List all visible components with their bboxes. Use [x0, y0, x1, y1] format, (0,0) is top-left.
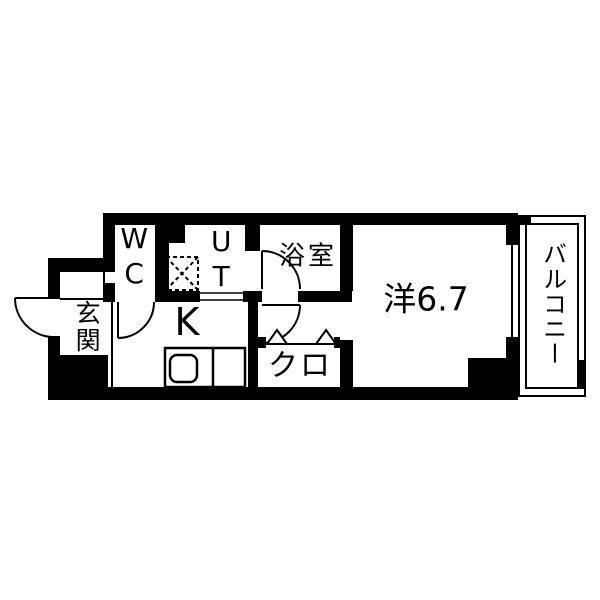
wall-closet-left: [248, 302, 258, 387]
wall-niche: [105, 272, 115, 283]
entrance-door: [15, 298, 54, 337]
wall-top: [103, 213, 518, 225]
balcony-label: バルコニー: [539, 242, 564, 367]
wc-label: WC: [119, 222, 148, 292]
closet-label: クロ: [268, 350, 332, 382]
kitchen-label: K: [175, 303, 200, 343]
wall-ut-bath: [245, 223, 260, 251]
wall-genkan-left-upper: [48, 272, 60, 299]
wall-under-ut: [243, 291, 262, 302]
washing-machine-cross-2: [166, 257, 198, 290]
wall-balcony-upper: [506, 225, 518, 245]
wall-bath-right: [340, 223, 353, 291]
closet-fold-triangle-right: [316, 330, 336, 344]
wall-genkan-bottom-block: [48, 355, 108, 400]
wc-door-arc: [118, 302, 154, 338]
wall-ut-pillar: [167, 223, 185, 243]
wall-genkan-top: [48, 258, 105, 272]
wall-bottom: [106, 387, 518, 400]
bathroom-label: 浴室: [279, 243, 337, 270]
kitchen-counter: [165, 348, 245, 387]
entrance-door-arc: [15, 298, 54, 337]
wall-pillar-bottom-right: [468, 358, 518, 387]
closet-folding-door: [266, 330, 336, 344]
washing-machine-area: [166, 257, 198, 290]
wall-closet-right: [340, 340, 353, 387]
utility-label: UT: [206, 225, 235, 295]
kitchen-sink: [170, 355, 197, 382]
wall-bath-bottom: [298, 291, 352, 302]
wc-door: [118, 302, 154, 338]
floor-plan: WC UT 浴室 洋6.7 K クロ 玄関 バルコニー: [0, 0, 600, 600]
wall-under-wc-a: [103, 291, 115, 302]
entrance-label: 玄関: [73, 300, 99, 354]
western-room-label: 洋6.7: [383, 283, 468, 318]
